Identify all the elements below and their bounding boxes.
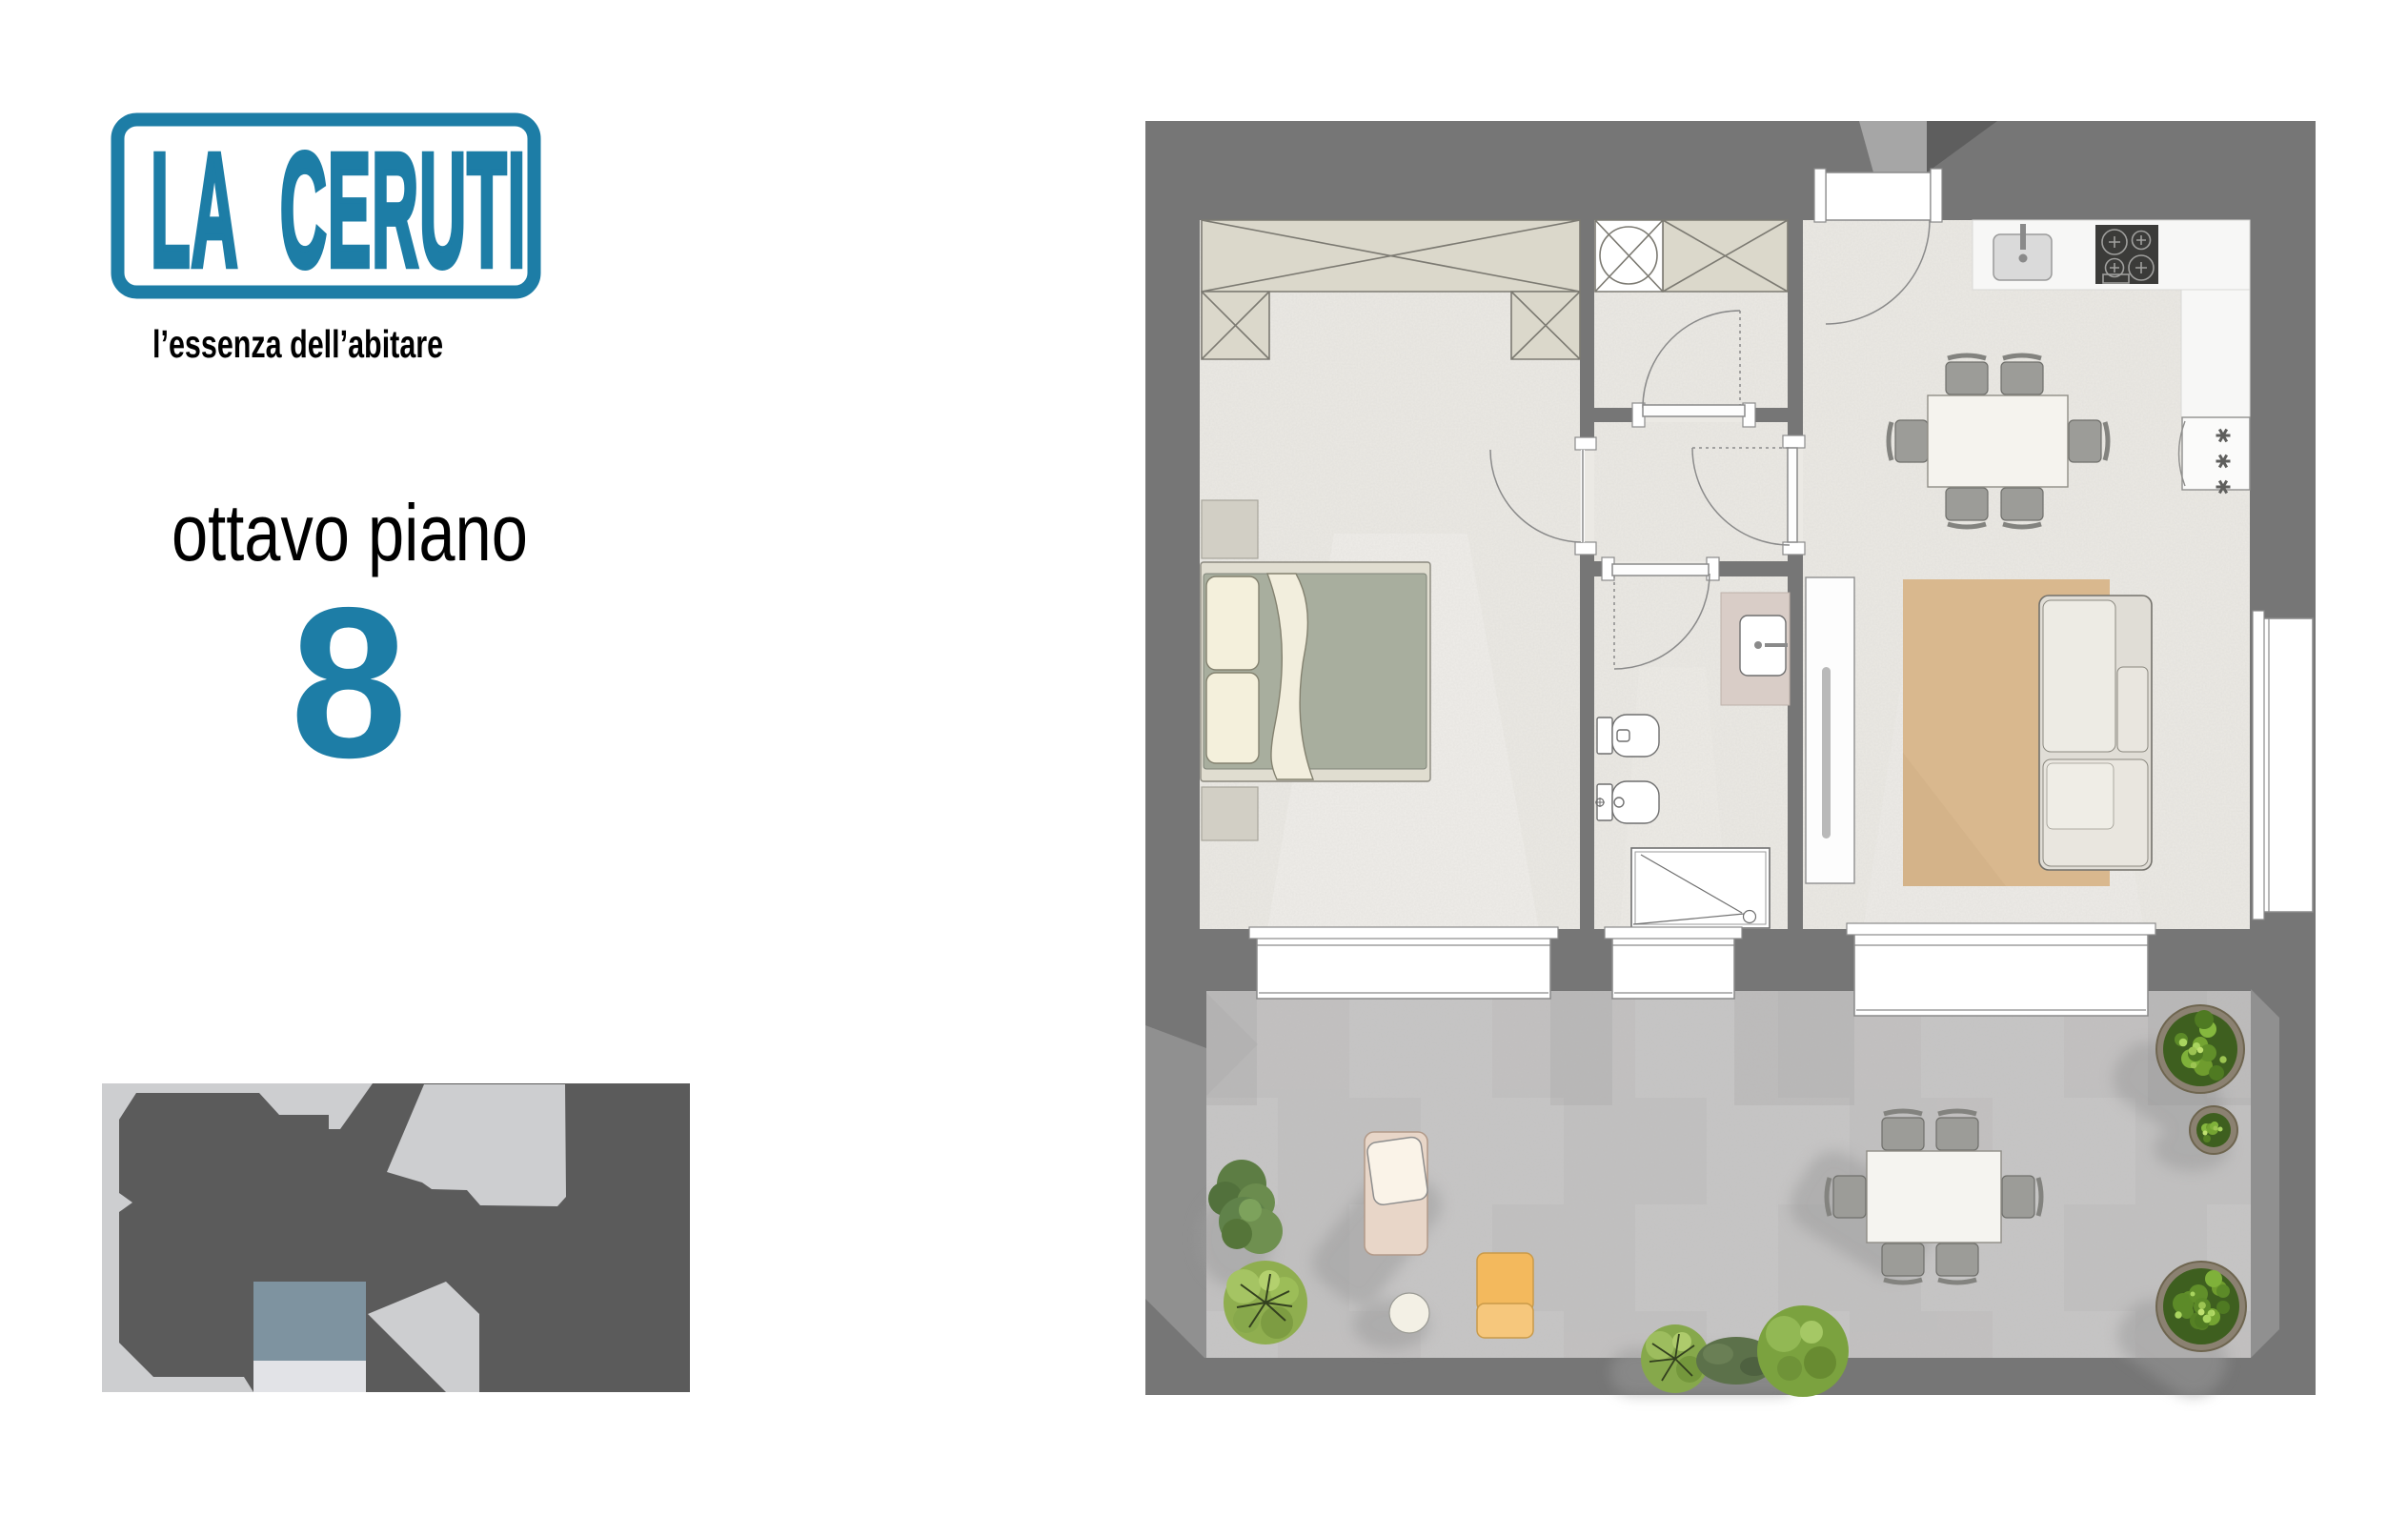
svg-text:l’essenza dell’abitare: l’essenza dell’abitare [152, 322, 443, 367]
svg-text:LA CERUTI: LA CERUTI [151, 121, 526, 301]
svg-text:8: 8 [291, 563, 408, 803]
